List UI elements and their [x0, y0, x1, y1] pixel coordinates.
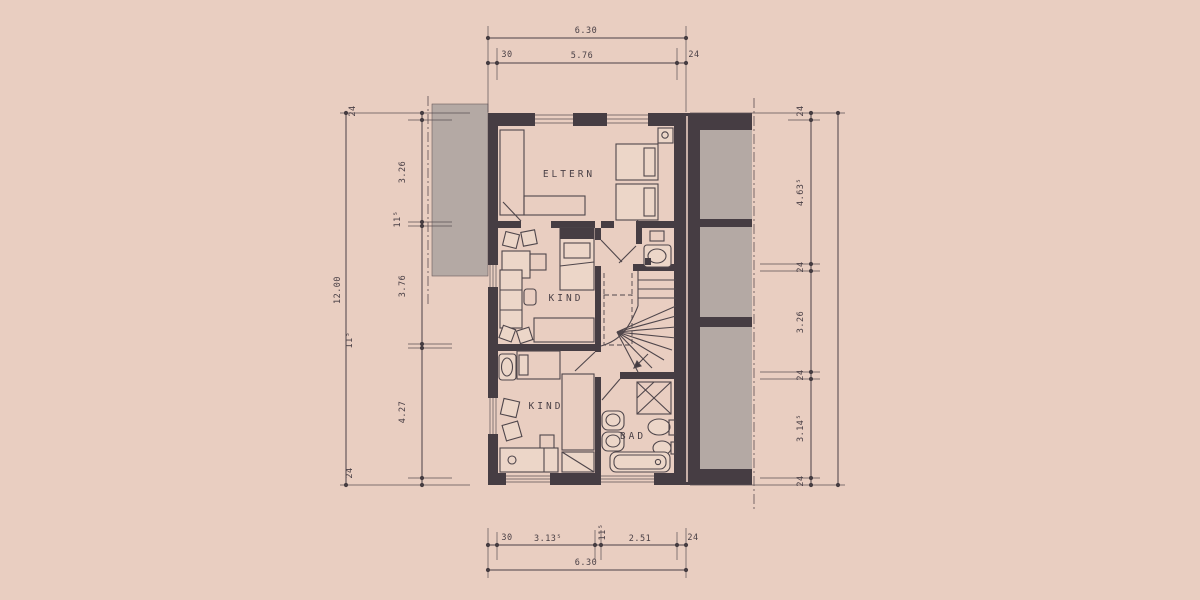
- window-top-1: [535, 115, 573, 123]
- room-label-eltern: ELTERN: [543, 169, 595, 180]
- dim-left-c3: 3.76: [398, 275, 408, 297]
- dimensions-bottom: 30 3.13⁵ 11⁵ 2.51 24 6.30: [486, 524, 699, 578]
- nightstand: [658, 128, 673, 143]
- dim-left-c2: 11⁵: [393, 211, 403, 228]
- dim-left-c0: 24: [348, 105, 358, 116]
- dim-right-c5: 3.14⁵: [796, 414, 806, 442]
- room-label-kind1: KIND: [549, 293, 584, 304]
- dim-right-c1: 4.63⁵: [796, 178, 806, 206]
- chair: [521, 230, 537, 246]
- kind2-room: KIND: [499, 351, 563, 472]
- pillow: [519, 355, 528, 375]
- dim-top-right-wall: 24: [688, 50, 699, 60]
- dim-bottom-left-wall: 30: [501, 533, 512, 543]
- room-label-kind2: KIND: [529, 401, 564, 412]
- toilet: [648, 419, 670, 435]
- window-left-1: [490, 265, 496, 287]
- neighbor-wall-mid2: [700, 317, 752, 327]
- window-left-2: [490, 398, 496, 434]
- dim-top-inner: 5.76: [571, 51, 593, 61]
- dim-right-c6: 24: [796, 475, 806, 486]
- garage-roof-left: [432, 104, 488, 276]
- wardrobe: [524, 196, 585, 215]
- dim-right-c2: 24: [796, 261, 806, 272]
- neighbor-wall-mid1: [700, 219, 752, 227]
- desk: [500, 448, 558, 472]
- washroom: [644, 231, 671, 267]
- dim-top-left-wall: 30: [501, 50, 512, 60]
- door-leaf-kind2: [575, 352, 595, 371]
- bed: [616, 144, 658, 180]
- door-leaf-washroom: [619, 246, 636, 263]
- chair: [503, 232, 520, 249]
- wardrobe: [562, 374, 594, 450]
- window-top-2: [607, 115, 648, 123]
- eltern-room: ELTERN: [500, 116, 675, 220]
- door-leaf-bath: [602, 379, 620, 400]
- cabinet: [530, 254, 546, 270]
- window-bottom-2: [598, 476, 654, 482]
- neighbor-wall-top: [700, 113, 752, 130]
- garage-roof-panel: [432, 104, 488, 276]
- window-bottom-1: [506, 476, 550, 482]
- dim-right-c4: 24: [796, 369, 806, 380]
- dim-top-overall: 6.30: [575, 26, 597, 36]
- mirror: [650, 231, 664, 241]
- bed: [616, 184, 658, 220]
- chair: [500, 398, 519, 417]
- staircase: [601, 271, 676, 372]
- neighbor-room-panel: [700, 327, 752, 469]
- room-label-bad: BAD: [620, 431, 646, 442]
- floor-plan-drawing: ELTERN KIND KIND: [0, 0, 1200, 600]
- dim-left-overall: 12.00: [333, 276, 343, 304]
- headboard: [560, 228, 594, 239]
- dim-left-c1: 3.26: [398, 161, 408, 183]
- dim-bottom-overall: 6.30: [575, 558, 597, 568]
- speaker-box: [668, 116, 675, 124]
- wardrobe: [534, 318, 594, 342]
- dim-bottom-right-wall: 24: [687, 533, 698, 543]
- stool: [516, 327, 532, 343]
- dim-bottom-mid-wall: 11⁵: [598, 524, 608, 541]
- door-leaf-kind1: [601, 240, 622, 262]
- dimensions-top: 6.30 30 5.76 24: [486, 26, 700, 112]
- neighbor-wall-bottom: [700, 469, 752, 485]
- speaker-box: [659, 116, 667, 124]
- neighbor-unit-right: [674, 113, 752, 485]
- dim-right-c0: 24: [796, 105, 806, 116]
- dim-left-c6: 24: [345, 467, 355, 478]
- cabinet: [540, 435, 554, 449]
- neighbor-room-panel: [700, 130, 752, 219]
- desk: [500, 270, 522, 328]
- dim-bottom-left-room: 3.13⁵: [534, 534, 562, 544]
- door-leaf-eltern-left: [503, 202, 521, 221]
- neighbor-room-panel: [700, 227, 752, 317]
- dim-right-c3: 3.26: [796, 311, 806, 333]
- dim-left-c4: 11⁵: [345, 332, 355, 349]
- dim-left-c5: 4.27: [398, 401, 408, 423]
- bathroom: BAD: [602, 382, 675, 472]
- kind1-room: KIND: [499, 228, 594, 344]
- dim-bottom-right-room: 2.51: [629, 534, 651, 544]
- chair: [524, 289, 536, 305]
- scanned-floor-plan-page: ELTERN KIND KIND: [0, 0, 1200, 600]
- chair: [502, 421, 522, 441]
- kind2-wardrobe: [562, 374, 594, 472]
